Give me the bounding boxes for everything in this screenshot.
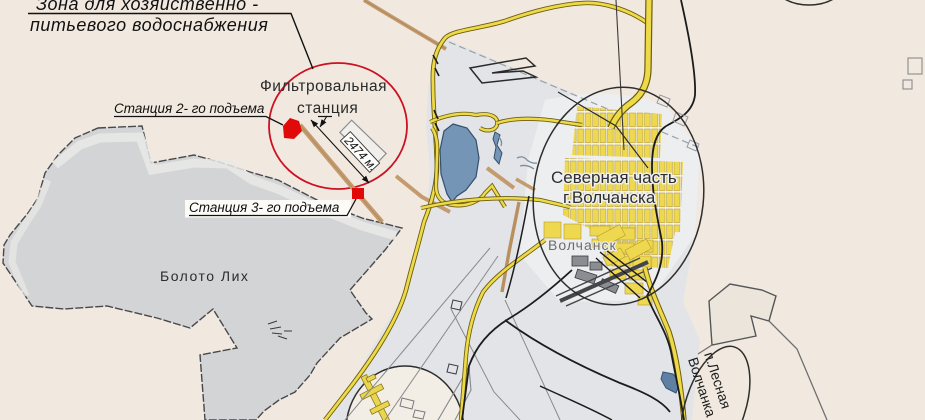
svg-text:Фильтровальная: Фильтровальная [260,78,387,95]
svg-text:г.Волчанска: г.Волчанска [563,188,656,207]
svg-text:Северная часть: Северная часть [551,168,677,187]
svg-text:станция: станция [297,100,358,117]
svg-text:Волчанск: Волчанск [548,237,617,253]
svg-text:Болото Лих: Болото Лих [160,268,249,284]
svg-text:Станция 2- го подъема: Станция 2- го подъема [114,101,265,116]
svg-text:Станция 3- го подъема: Станция 3- го подъема [189,200,340,215]
svg-text:Зона для хозяйственно -: Зона для хозяйственно - [36,0,259,14]
svg-text:питьевого водоснабжения: питьевого водоснабжения [30,15,268,35]
